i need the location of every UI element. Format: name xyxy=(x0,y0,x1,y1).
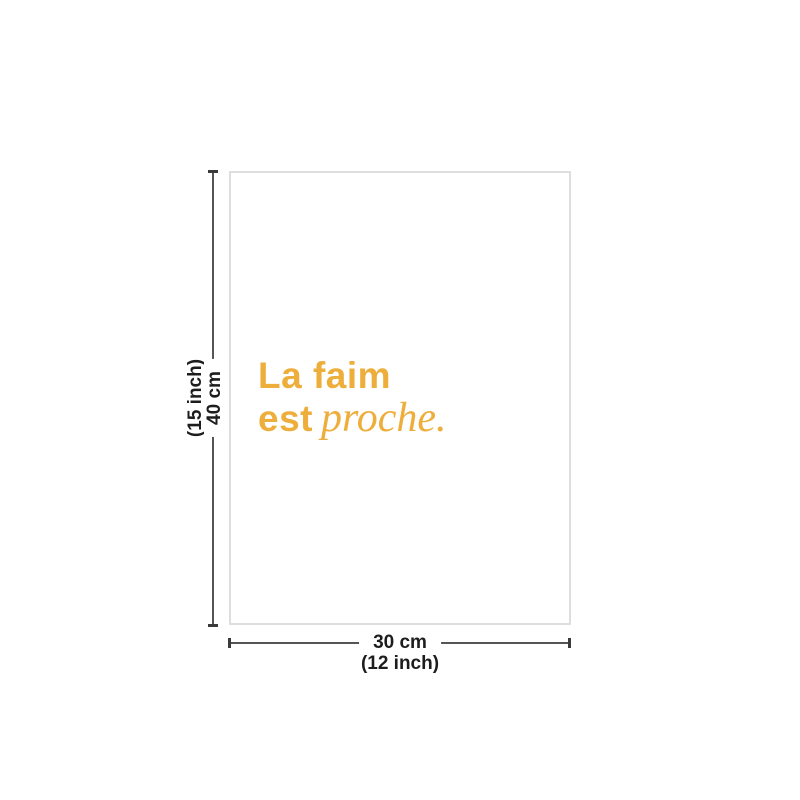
product-size-diagram: La faim estproche. (15 inch) 40 cm 30 cm… xyxy=(0,0,800,800)
height-dimension-value-label: 40 cm xyxy=(204,359,226,437)
poster-quote-line2-bold: est xyxy=(258,398,313,439)
height-dimension-cap-top xyxy=(208,170,218,173)
poster-quote-line1: La faim xyxy=(258,354,447,397)
poster-quote: La faim estproche. xyxy=(258,354,447,448)
height-dimension-cap-bottom xyxy=(208,624,218,627)
width-dimension-alt-label: (12 inch) xyxy=(357,653,443,675)
width-dimension-value-label: 30 cm xyxy=(359,632,441,654)
width-dimension-cap-left xyxy=(228,638,231,648)
width-dimension-cap-right xyxy=(568,638,571,648)
poster-quote-line2: estproche. xyxy=(258,397,447,448)
poster-quote-line2-italic: proche. xyxy=(321,395,447,441)
poster-mockup: La faim estproche. xyxy=(229,171,571,625)
